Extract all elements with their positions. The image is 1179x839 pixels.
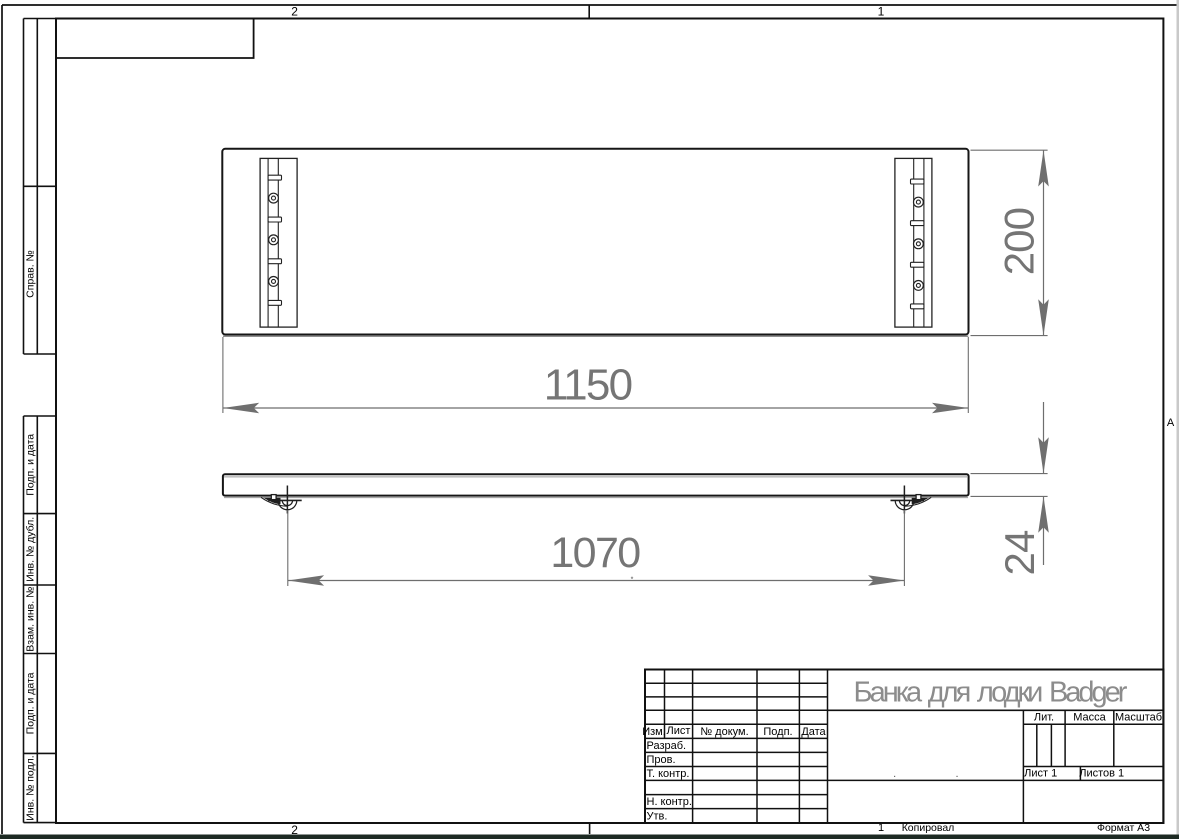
svg-text:Изм.: Изм. bbox=[642, 726, 666, 738]
svg-text:Подп.: Подп. bbox=[763, 726, 792, 738]
svg-text:Инв. № подл.: Инв. № подл. bbox=[24, 755, 36, 820]
svg-text:№ докум.: № докум. bbox=[700, 726, 748, 738]
svg-text:.: . bbox=[955, 768, 958, 780]
svg-text:Масштаб: Масштаб bbox=[1115, 712, 1162, 724]
svg-text:Листов 1: Листов 1 bbox=[1079, 768, 1124, 780]
svg-text:Т. контр.: Т. контр. bbox=[647, 768, 690, 780]
svg-text:200: 200 bbox=[995, 208, 1042, 275]
svg-text:Лист 1: Лист 1 bbox=[1024, 768, 1057, 780]
svg-text:Банка для лодки Badger: Банка для лодки Badger bbox=[854, 677, 1128, 709]
svg-text:Лист: Лист bbox=[667, 725, 691, 737]
svg-text:2: 2 bbox=[291, 823, 298, 837]
svg-text:Подп. и дата: Подп. и дата bbox=[24, 434, 36, 496]
svg-text:A: A bbox=[1167, 417, 1175, 429]
svg-text:.: . bbox=[893, 768, 896, 780]
svg-text:Лит.: Лит. bbox=[1034, 712, 1054, 724]
svg-text:Взам. инв. №: Взам. инв. № bbox=[24, 587, 36, 652]
svg-text:24: 24 bbox=[996, 530, 1043, 575]
svg-text:Справ. №: Справ. № bbox=[24, 250, 36, 298]
svg-text:Инв. № дубл.: Инв. № дубл. bbox=[24, 517, 36, 582]
svg-text:1150: 1150 bbox=[544, 361, 632, 410]
svg-text:Разраб.: Разраб. bbox=[647, 740, 687, 752]
svg-text:Пров.: Пров. bbox=[647, 754, 676, 766]
svg-text:Н. контр.: Н. контр. bbox=[647, 796, 692, 808]
svg-text:Утв.: Утв. bbox=[647, 811, 668, 823]
svg-text:Масса: Масса bbox=[1073, 712, 1106, 724]
svg-text:Подп. и дата: Подп. и дата bbox=[24, 672, 36, 734]
svg-text:1: 1 bbox=[878, 5, 885, 19]
svg-text:2: 2 bbox=[291, 5, 298, 19]
svg-text:1070: 1070 bbox=[550, 529, 640, 577]
svg-text:Дата: Дата bbox=[801, 726, 826, 738]
